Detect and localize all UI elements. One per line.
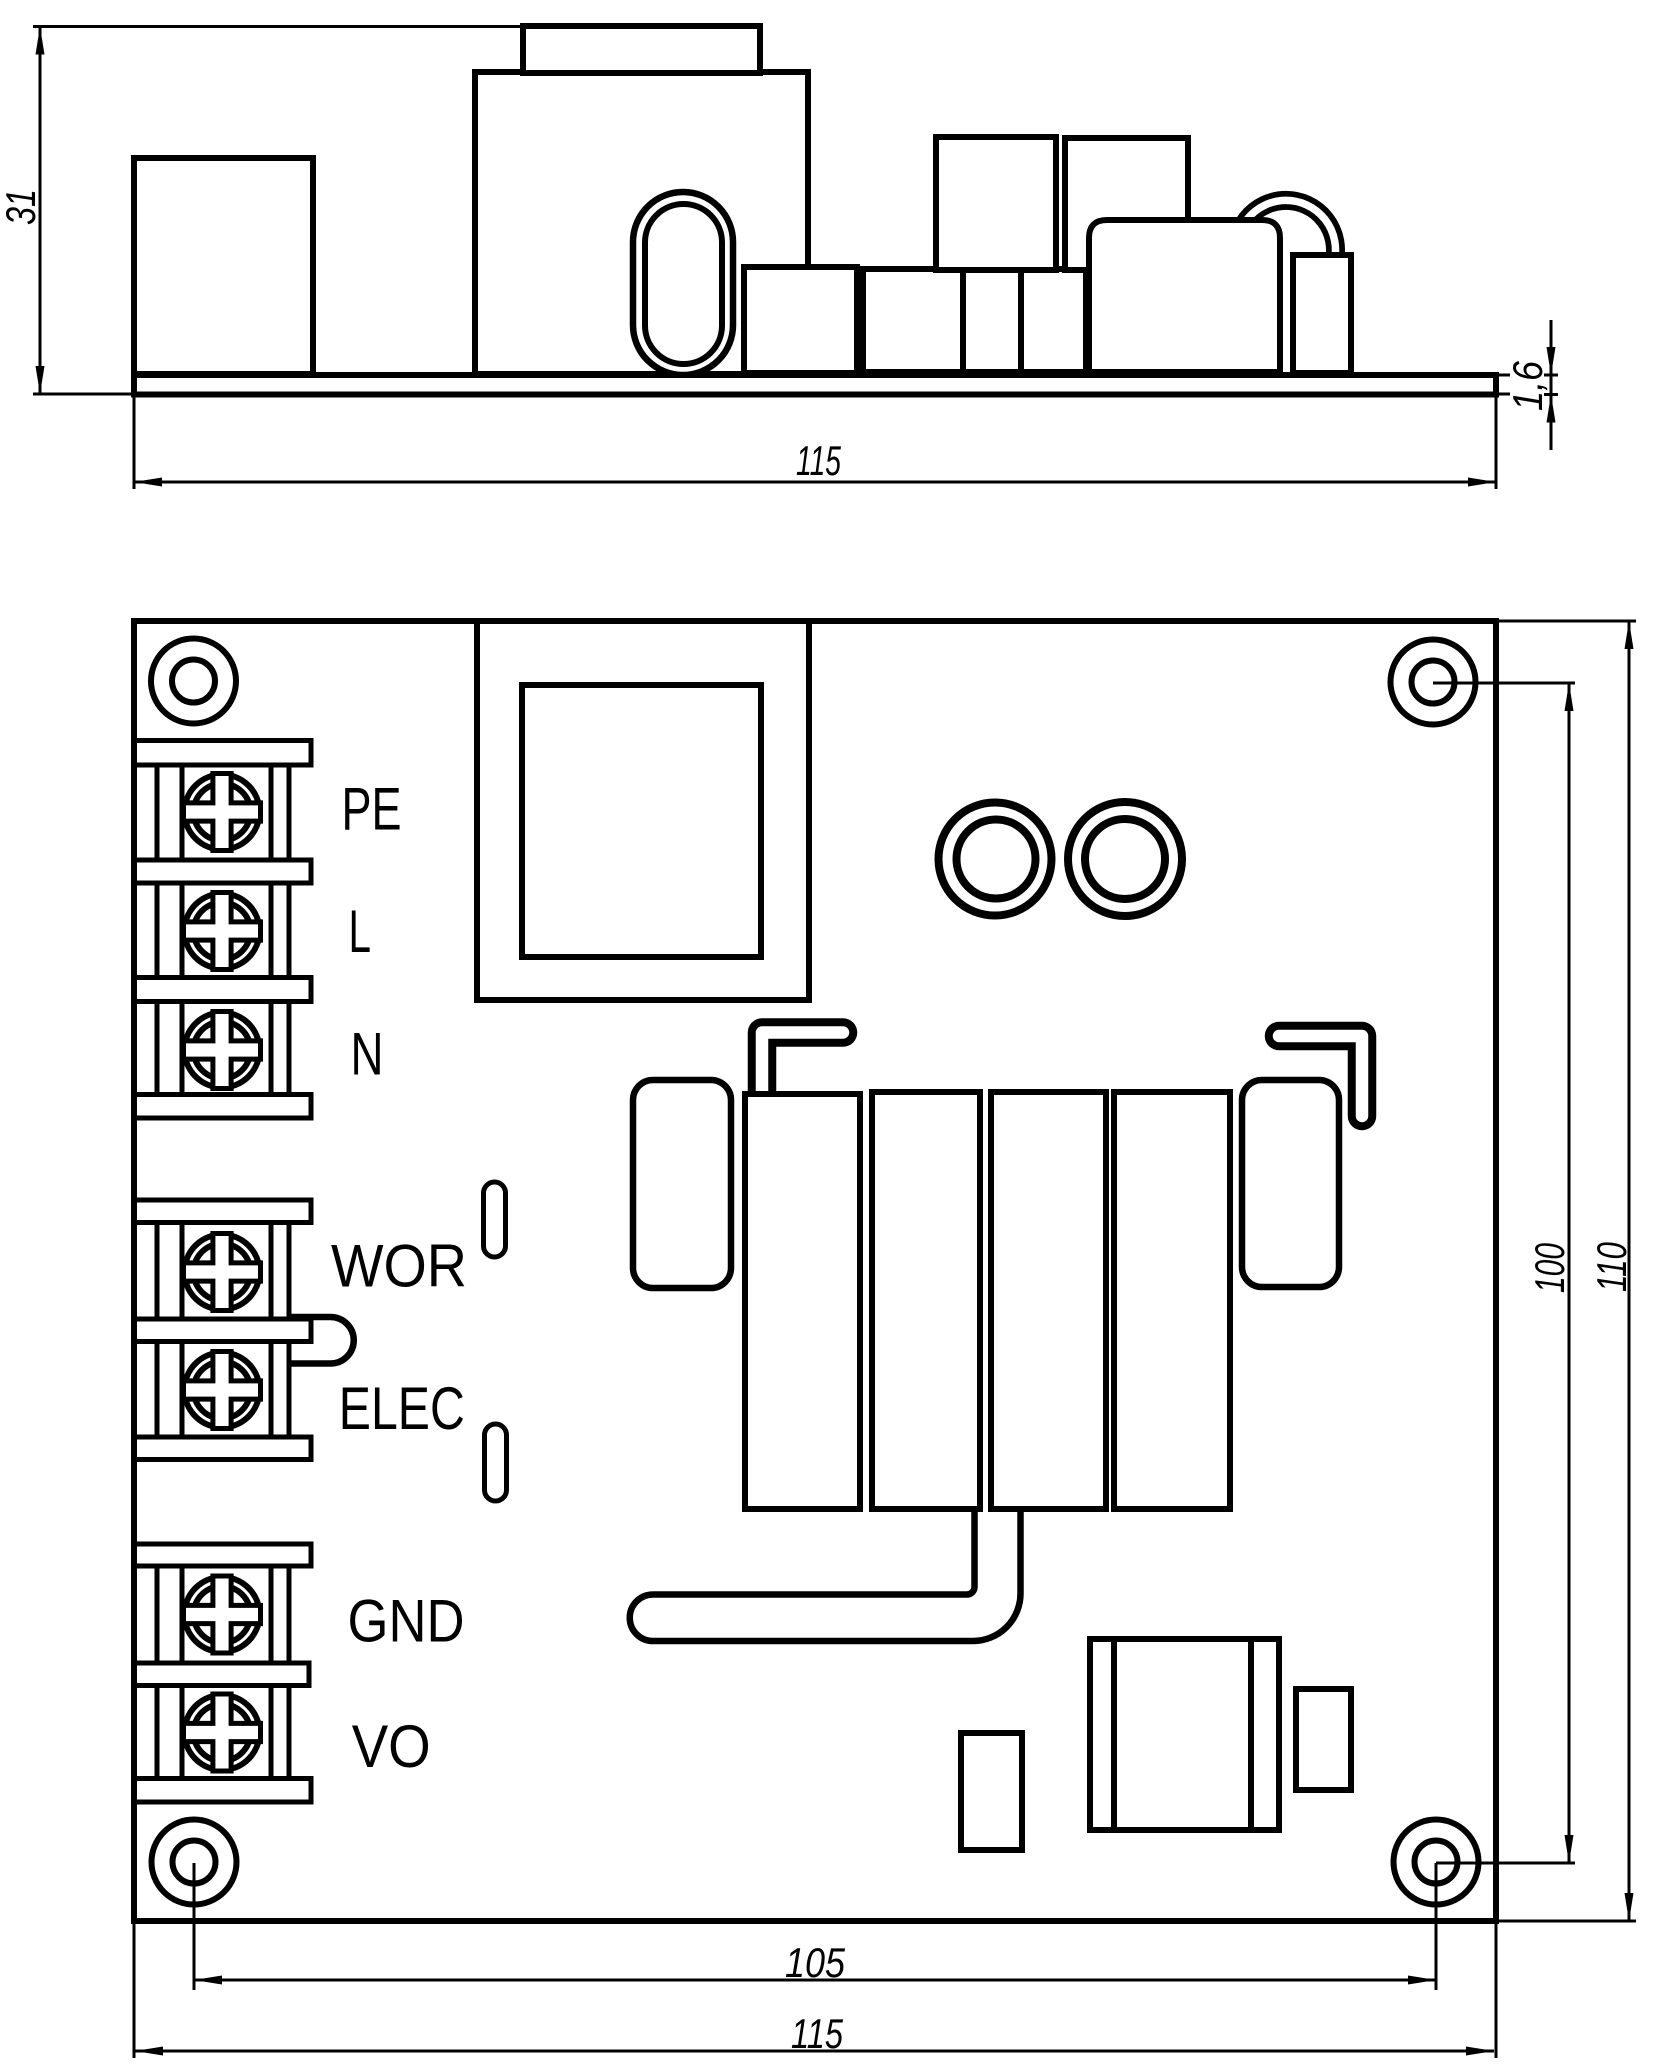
svg-text:L: L — [349, 898, 372, 965]
svg-text:110: 110 — [1588, 1242, 1635, 1292]
svg-text:ELEC: ELEC — [339, 1375, 465, 1442]
svg-text:100: 100 — [1526, 1243, 1573, 1293]
svg-text:VO: VO — [352, 1713, 431, 1780]
svg-text:N: N — [351, 1021, 384, 1088]
svg-text:105: 105 — [785, 1939, 846, 1986]
svg-text:31: 31 — [0, 189, 44, 225]
svg-text:WOR: WOR — [331, 1233, 467, 1300]
svg-text:1,6: 1,6 — [1504, 360, 1551, 411]
svg-text:GND: GND — [348, 1588, 465, 1655]
svg-text:115: 115 — [796, 437, 841, 484]
svg-text:115: 115 — [791, 2010, 843, 2057]
svg-text:PE: PE — [342, 776, 402, 843]
